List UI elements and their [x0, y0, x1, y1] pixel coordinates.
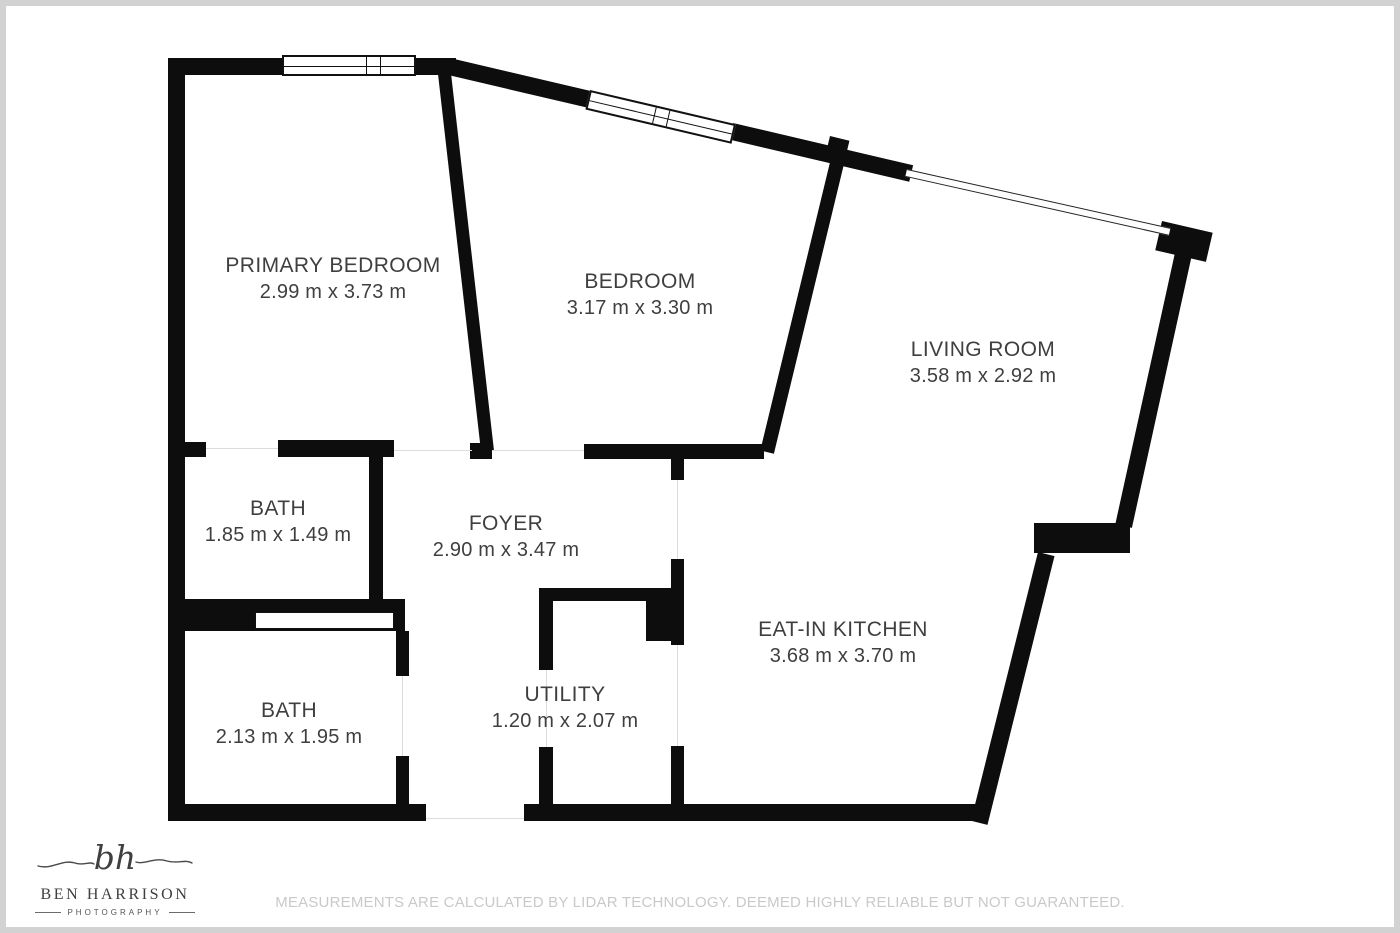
room-name: FOYER: [433, 510, 579, 537]
wall-segment: [971, 552, 1055, 825]
wall-segment: [524, 804, 984, 821]
door-opening: [402, 676, 403, 756]
logo-flourish-right: [136, 860, 192, 863]
room-name: EAT-IN KITCHEN: [758, 616, 928, 643]
window-wall: [905, 169, 1170, 236]
window-mullion: [380, 57, 381, 74]
closet-inset: [255, 612, 394, 629]
logo-monogram-text: bh: [94, 838, 136, 877]
room-dimensions: 2.13 m x 1.95 m: [216, 724, 362, 751]
room-name: LIVING ROOM: [910, 336, 1056, 363]
room-name: BEDROOM: [567, 268, 713, 295]
room-dimensions: 2.90 m x 3.47 m: [433, 537, 579, 564]
room-label-bath-top: BATH 1.85 m x 1.49 m: [205, 495, 351, 549]
wall-segment: [1034, 523, 1130, 553]
logo-flourish-left: [38, 862, 94, 867]
wall-segment: [539, 588, 553, 670]
wall-segment: [438, 73, 494, 452]
floorplan-canvas: PRIMARY BEDROOM 2.99 m x 3.73 m BEDROOM …: [0, 0, 1400, 933]
wall-segment: [369, 442, 383, 612]
room-name: PRIMARY BEDROOM: [225, 252, 440, 279]
tagline-rule: [169, 912, 195, 913]
wall-segment: [168, 58, 185, 821]
wall-segment: [396, 631, 409, 676]
room-name: BATH: [216, 697, 362, 724]
room-dimensions: 3.17 m x 3.30 m: [567, 295, 713, 322]
wall-segment: [729, 123, 913, 182]
room-label-primary-bedroom: PRIMARY BEDROOM 2.99 m x 3.73 m: [225, 252, 440, 306]
room-dimensions: 2.99 m x 3.73 m: [225, 279, 440, 306]
door-opening: [394, 450, 472, 451]
door-opening: [677, 645, 678, 746]
tagline-rule: [35, 912, 61, 913]
room-name: UTILITY: [492, 681, 638, 708]
room-label-kitchen: EAT-IN KITCHEN 3.68 m x 3.70 m: [758, 616, 928, 670]
room-dimensions: 3.68 m x 3.70 m: [758, 643, 928, 670]
window: [585, 90, 736, 144]
door-opening: [426, 818, 524, 819]
wall-segment: [446, 58, 596, 109]
room-label-utility: UTILITY 1.20 m x 2.07 m: [492, 681, 638, 735]
room-dimensions: 3.58 m x 2.92 m: [910, 363, 1056, 390]
wall-segment: [470, 443, 492, 459]
room-dimensions: 1.85 m x 1.49 m: [205, 522, 351, 549]
wall-segment: [671, 746, 684, 821]
wall-segment: [168, 58, 284, 75]
door-opening: [677, 480, 678, 559]
wall-segment: [539, 588, 651, 601]
window-mullion: [366, 57, 367, 74]
window: [282, 55, 416, 76]
room-dimensions: 1.20 m x 2.07 m: [492, 708, 638, 735]
wall-segment: [539, 747, 553, 821]
door-opening: [492, 450, 584, 451]
wall-segment: [1115, 239, 1194, 528]
wall-segment: [396, 756, 409, 821]
room-label-foyer: FOYER 2.90 m x 3.47 m: [433, 510, 579, 564]
wall-segment: [671, 456, 684, 480]
wall-segment: [168, 804, 426, 821]
wall-segment: [760, 154, 845, 454]
room-label-bedroom: BEDROOM 3.17 m x 3.30 m: [567, 268, 713, 322]
window-glass-line: [589, 100, 731, 134]
wall-segment: [671, 559, 684, 645]
room-label-living-room: LIVING ROOM 3.58 m x 2.92 m: [910, 336, 1056, 390]
window-glass-line: [284, 66, 414, 67]
room-label-bath-bottom: BATH 2.13 m x 1.95 m: [216, 697, 362, 751]
wall-segment: [168, 442, 206, 457]
brand-monogram: bh: [30, 836, 200, 880]
room-name: BATH: [205, 495, 351, 522]
door-opening: [206, 448, 278, 449]
disclaimer-text: MEASUREMENTS ARE CALCULATED BY LIDAR TEC…: [6, 894, 1394, 911]
